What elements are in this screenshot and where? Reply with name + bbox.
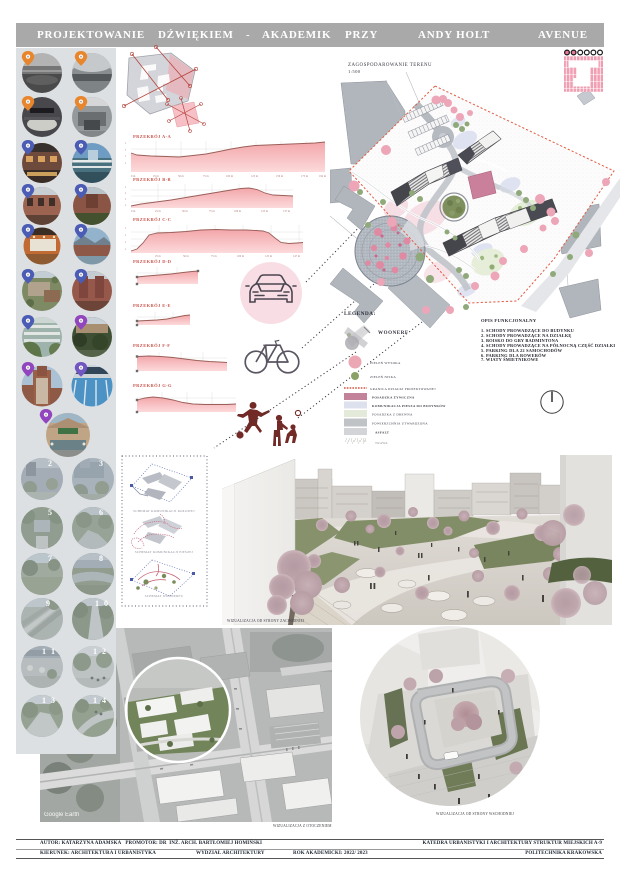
svg-text:GRANICA DZIAŁKI PROJEKTOWANEJ: GRANICA DZIAŁKI PROJEKTOWANEJ bbox=[370, 387, 436, 391]
svg-text:ASFALT: ASFALT bbox=[375, 431, 390, 435]
svg-text:100 m: 100 m bbox=[226, 175, 234, 178]
svg-text:7: 7 bbox=[48, 554, 54, 563]
svg-text:75 m: 75 m bbox=[203, 175, 209, 178]
svg-text:LEGENDA:: LEGENDA: bbox=[344, 311, 376, 317]
svg-text:ZIELEŃ WYSOKA: ZIELEŃ WYSOKA bbox=[370, 360, 401, 365]
svg-text:ZAGOSPODAROWANIE TERENU: ZAGOSPODAROWANIE TERENU bbox=[348, 63, 432, 68]
svg-text:9: 9 bbox=[46, 599, 52, 608]
svg-text:150 m: 150 m bbox=[276, 175, 284, 178]
svg-text:3: 3 bbox=[99, 459, 105, 468]
svg-text:SCHEMAT KOMUNIKACJI KOŁOWEJ: SCHEMAT KOMUNIKACJI KOŁOWEJ bbox=[133, 509, 195, 513]
svg-text:6: 6 bbox=[99, 508, 105, 517]
svg-text:ZIELEŃ NISKA: ZIELEŃ NISKA bbox=[370, 374, 396, 379]
svg-text:POSADZKA Z DREWNA: POSADZKA Z DREWNA bbox=[372, 413, 413, 417]
svg-text:1 0: 1 0 bbox=[95, 599, 110, 608]
svg-text:SCHEMAT KOMUNIKACJI PIESZEJ: SCHEMAT KOMUNIKACJI PIESZEJ bbox=[135, 550, 194, 554]
svg-text:1:500: 1:500 bbox=[348, 69, 361, 74]
svg-text:1 4: 1 4 bbox=[93, 696, 108, 705]
svg-text:125 m: 125 m bbox=[251, 175, 259, 178]
svg-text:50 m: 50 m bbox=[178, 175, 184, 178]
svg-text:1 1: 1 1 bbox=[42, 647, 57, 656]
svg-text:POWIERZCHNIA UTWARDZONA: POWIERZCHNIA UTWARDZONA bbox=[372, 422, 428, 426]
svg-text:1 2: 1 2 bbox=[93, 647, 108, 656]
svg-text:KOMUNIKACJA PIESZA DO BUDYNKÓW: KOMUNIKACJA PIESZA DO BUDYNKÓW bbox=[372, 403, 446, 408]
svg-text:TRAWA: TRAWA bbox=[375, 441, 388, 445]
svg-text:2: 2 bbox=[48, 459, 54, 468]
svg-text:Google Earth: Google Earth bbox=[44, 812, 79, 818]
svg-text:PRZEKRÓJ A-A: PRZEKRÓJ A-A bbox=[133, 134, 172, 139]
svg-text:192 m: 192 m bbox=[319, 175, 327, 178]
svg-text:8: 8 bbox=[99, 554, 105, 563]
svg-text:PRZEKRÓJ B-B: PRZEKRÓJ B-B bbox=[133, 177, 171, 182]
svg-text:1 3: 1 3 bbox=[42, 696, 57, 705]
svg-text:POSADZKA ŻYWICZNA: POSADZKA ŻYWICZNA bbox=[372, 395, 415, 400]
svg-text:SCHEMAT WOONERFU: SCHEMAT WOONERFU bbox=[145, 594, 184, 598]
svg-text:WOONERF: WOONERF bbox=[378, 331, 409, 336]
svg-text:175 m: 175 m bbox=[301, 175, 309, 178]
svg-text:5: 5 bbox=[48, 508, 54, 517]
